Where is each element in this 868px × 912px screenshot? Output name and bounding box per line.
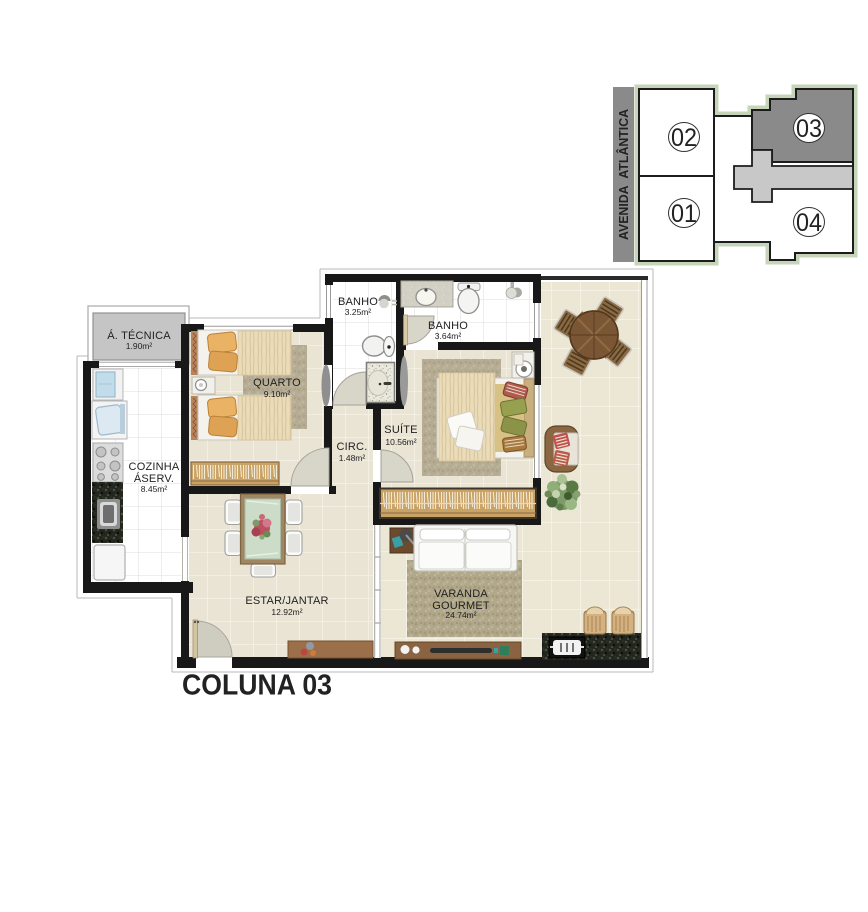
svg-text:AVENIDA ATLÂNTICA: AVENIDA ATLÂNTICA [616, 108, 631, 240]
svg-text:9.10m²: 9.10m² [264, 389, 291, 399]
svg-text:12.92m²: 12.92m² [271, 607, 302, 617]
svg-text:QUARTO: QUARTO [253, 377, 301, 389]
svg-text:8.45m²: 8.45m² [141, 484, 168, 494]
svg-text:ESTAR/JANTAR: ESTAR/JANTAR [245, 595, 328, 607]
svg-text:1.48m²: 1.48m² [339, 453, 366, 463]
svg-text:COLUNA 03: COLUNA 03 [182, 670, 332, 702]
svg-text:CIRC.: CIRC. [337, 441, 368, 453]
svg-text:VARANDA: VARANDA [434, 588, 488, 600]
svg-text:COZINHA: COZINHA [129, 461, 180, 473]
svg-text:04: 04 [796, 209, 822, 237]
svg-text:3.64m²: 3.64m² [435, 331, 462, 341]
svg-text:24.74m²: 24.74m² [445, 610, 476, 620]
svg-text:03: 03 [796, 115, 822, 143]
svg-text:02: 02 [671, 124, 697, 152]
svg-text:01: 01 [671, 200, 697, 228]
svg-text:10.56m²: 10.56m² [385, 437, 416, 447]
svg-text:1.90m²: 1.90m² [126, 341, 153, 351]
svg-text:SUÍTE: SUÍTE [384, 423, 417, 436]
svg-text:3.25m²: 3.25m² [345, 307, 372, 317]
